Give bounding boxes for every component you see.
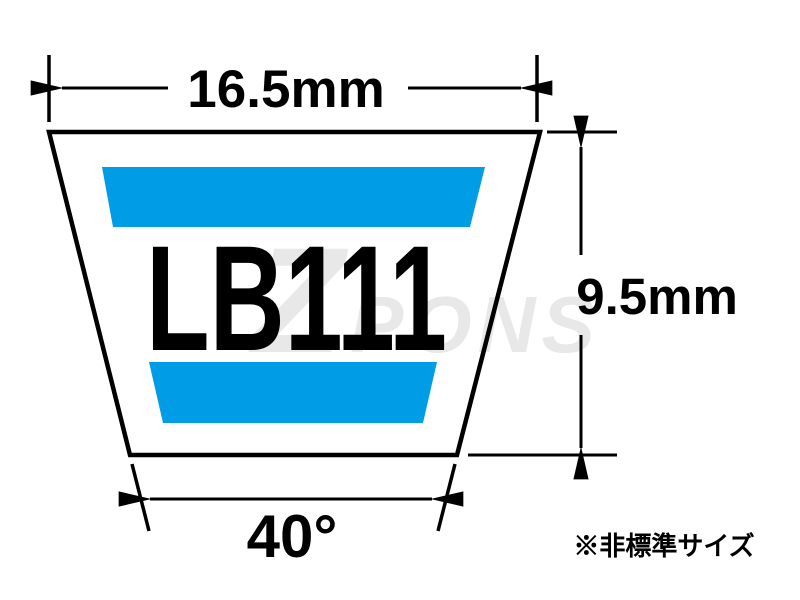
part-number-label: LB111 <box>146 214 447 382</box>
belt-cross-section-diagram: Z PONS LB111 16.5mm 9.5mm <box>0 0 800 600</box>
diagram-canvas: Z PONS LB111 16.5mm 9.5mm <box>0 0 800 600</box>
angle-tick-left <box>132 464 149 531</box>
angle-label: 40° <box>247 503 338 570</box>
angle-tick-right <box>438 464 455 531</box>
dimension-angle: 40° <box>132 464 455 570</box>
top-width-label: 16.5mm <box>187 60 384 119</box>
dimension-top-width: 16.5mm <box>49 55 537 122</box>
height-label: 9.5mm <box>576 268 738 325</box>
footnote-label: ※非標準サイズ <box>573 531 754 561</box>
